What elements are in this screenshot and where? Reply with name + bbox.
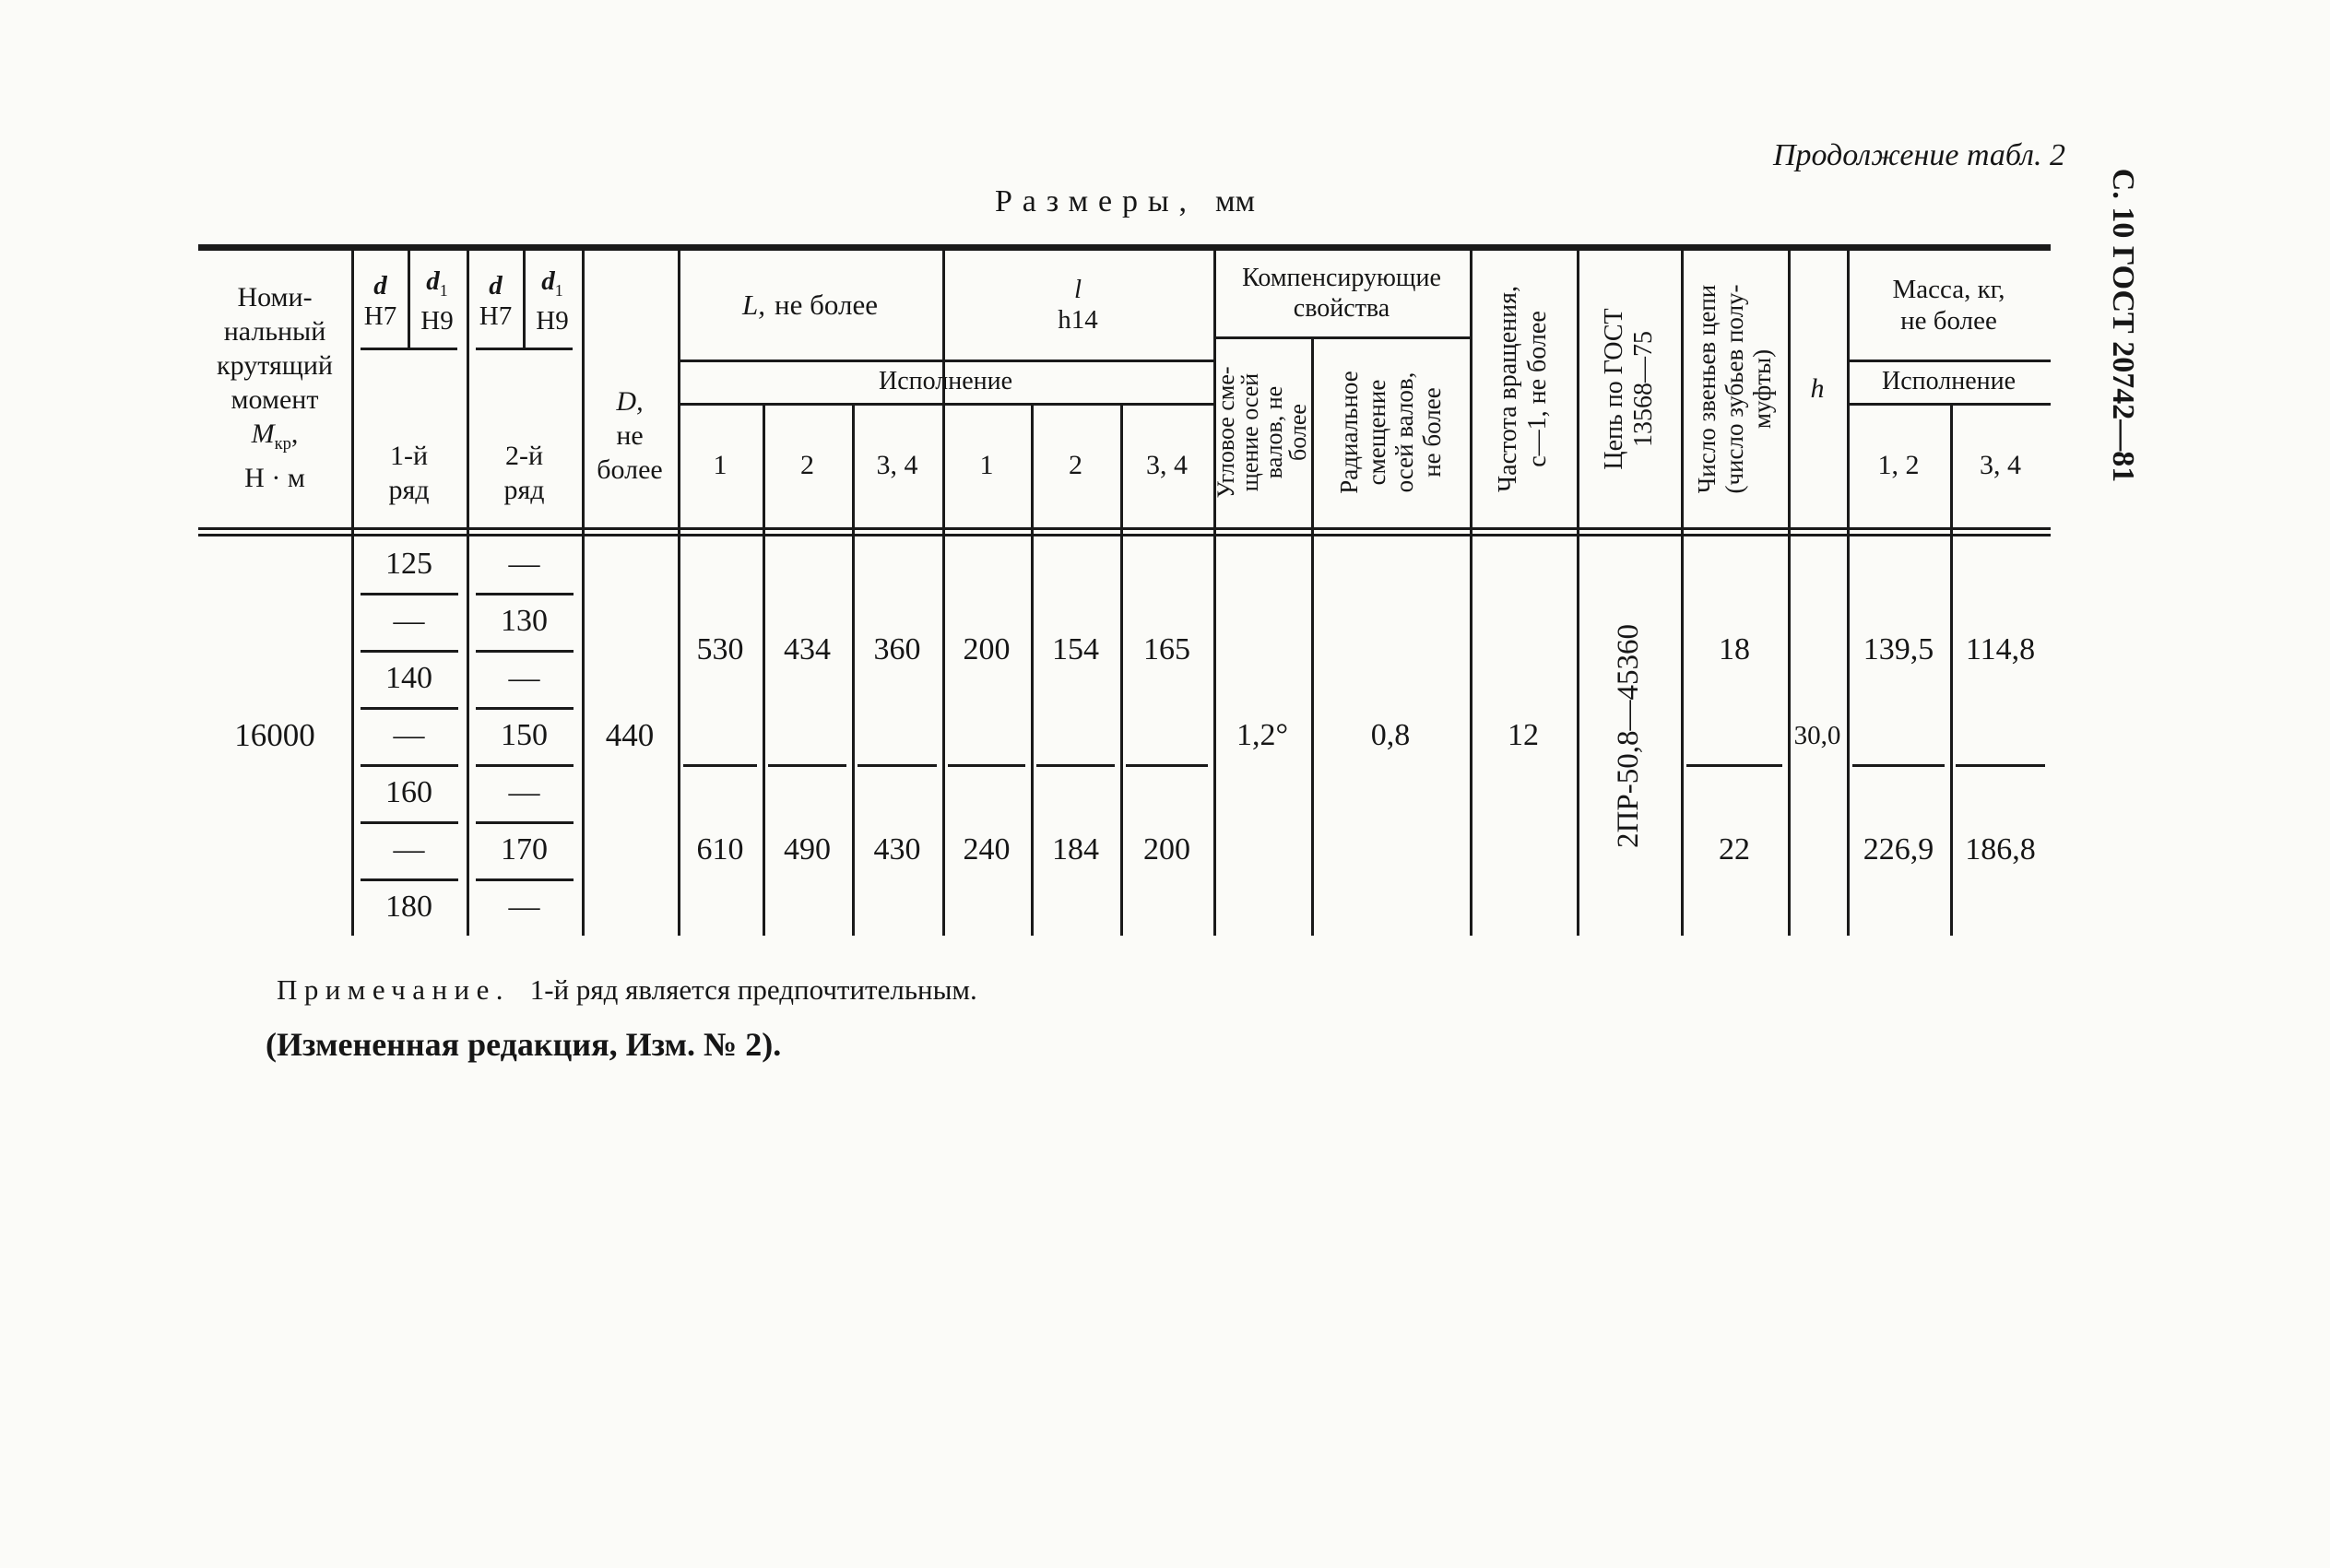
mass12-g1: 139,5	[1847, 536, 1950, 764]
table-line	[1847, 403, 2051, 406]
series2-row: —	[467, 650, 582, 707]
col-header-radial: Радиальное смещение осей валов, не более	[1311, 336, 1470, 527]
col-header-links: Число звеньев цепи (число зубьев полу- м…	[1681, 251, 1788, 527]
series2-row: —	[467, 536, 582, 593]
l1-g1: 200	[942, 536, 1031, 764]
series2-row: 170	[467, 821, 582, 878]
series1-row: —	[351, 707, 467, 764]
col-header-D: D, не более	[582, 355, 678, 516]
series1-row: —	[351, 593, 467, 650]
L34-g1: 360	[852, 536, 942, 764]
links-g2: 22	[1681, 764, 1788, 936]
h-value: 30,0	[1788, 536, 1847, 936]
table-title: Размеры, мм	[198, 181, 2052, 223]
series1-row: 160	[351, 764, 467, 821]
l2-g1: 154	[1031, 536, 1120, 764]
col-header-frequency: Частота вращения, с—1, не более	[1470, 251, 1577, 527]
table-line	[678, 403, 1213, 406]
L2-g2: 490	[763, 764, 852, 936]
l34-g2: 200	[1120, 764, 1213, 936]
document-page: Продолжение табл. 2 С. 10 ГОСТ 20742—81 …	[0, 0, 2330, 1568]
series2-row: 130	[467, 593, 582, 650]
col-header-exec-l1: 1	[942, 407, 1031, 525]
col-header-L: L, не более	[678, 253, 942, 357]
header-ispolnenie-Ll: Исполнение	[678, 360, 1213, 403]
L1-g2: 610	[678, 764, 763, 936]
table-line	[476, 348, 573, 350]
col-header-compensating: Компенсирующие свойства	[1213, 252, 1470, 335]
col-header-d1-h9-row2: d1 H9	[525, 257, 580, 346]
table-line	[361, 348, 457, 350]
col-header-l: l h14	[942, 253, 1213, 357]
angular-value: 1,2°	[1213, 536, 1311, 936]
col-header-d-h7-row2: d H7	[468, 257, 523, 346]
table-top-rule	[198, 244, 2051, 251]
l2-g2: 184	[1031, 764, 1120, 936]
col-header-chain: Цепь по ГОСТ 13568—75	[1577, 251, 1681, 527]
links-g1: 18	[1681, 536, 1788, 764]
col-header-d-h7-row1: d H7	[353, 257, 408, 346]
col-header-mass-12: 1, 2	[1847, 407, 1950, 525]
moment-value: 16000	[198, 536, 351, 936]
page-side-label: С. 10 ГОСТ 20742—81	[2082, 118, 2163, 533]
col-header-mass-34: 3, 4	[1950, 407, 2051, 525]
mass34-g2: 186,8	[1950, 764, 2051, 936]
col-header-exec-l2: 2	[1031, 407, 1120, 525]
col-header-h: h	[1788, 251, 1847, 527]
header-ispolnenie-mass: Исполнение	[1847, 360, 2051, 403]
chain-value: 2ПР-50,8—45360	[1577, 536, 1681, 936]
col-header-series-2: 2-й ряд	[467, 429, 582, 516]
series1-row: 180	[351, 878, 467, 936]
note: Примечание. 1-й ряд является предпочтите…	[277, 973, 977, 1007]
frequency-value: 12	[1470, 536, 1577, 936]
mass34-g1: 114,8	[1950, 536, 2051, 764]
mass12-g2: 226,9	[1847, 764, 1950, 936]
dimensions-table: Номи- нальный крутящий момент Мкр, Н · м…	[198, 244, 2052, 937]
series1-row: —	[351, 821, 467, 878]
col-header-series-1: 1-й ряд	[351, 429, 467, 516]
col-header-moment: Номи- нальный крутящий момент Мкр, Н · м	[200, 281, 349, 493]
col-header-exec-L34: 3, 4	[852, 407, 942, 525]
D-value: 440	[582, 536, 678, 936]
header-bottom-rule-1	[198, 527, 2051, 530]
col-header-exec-L1: 1	[678, 407, 763, 525]
l34-g1: 165	[1120, 536, 1213, 764]
l1-g2: 240	[942, 764, 1031, 936]
continuation-label: Продолжение табл. 2	[1567, 135, 2065, 177]
revision-note: (Измененная редакция, Изм. № 2).	[266, 1025, 781, 1064]
series1-row: 125	[351, 536, 467, 593]
series1-row: 140	[351, 650, 467, 707]
col-header-d1-h9-row1: d1 H9	[409, 257, 465, 346]
L2-g1: 434	[763, 536, 852, 764]
col-header-angular: Угловое сме- щение осей валов, не более	[1213, 336, 1311, 527]
col-header-exec-L2: 2	[763, 407, 852, 525]
col-header-mass: Масса, кг, не более	[1847, 253, 2051, 357]
radial-value: 0,8	[1311, 536, 1470, 936]
col-header-exec-l34: 3, 4	[1120, 407, 1213, 525]
series2-row: —	[467, 764, 582, 821]
series2-row: —	[467, 878, 582, 936]
L1-g1: 530	[678, 536, 763, 764]
L34-g2: 430	[852, 764, 942, 936]
series2-row: 150	[467, 707, 582, 764]
